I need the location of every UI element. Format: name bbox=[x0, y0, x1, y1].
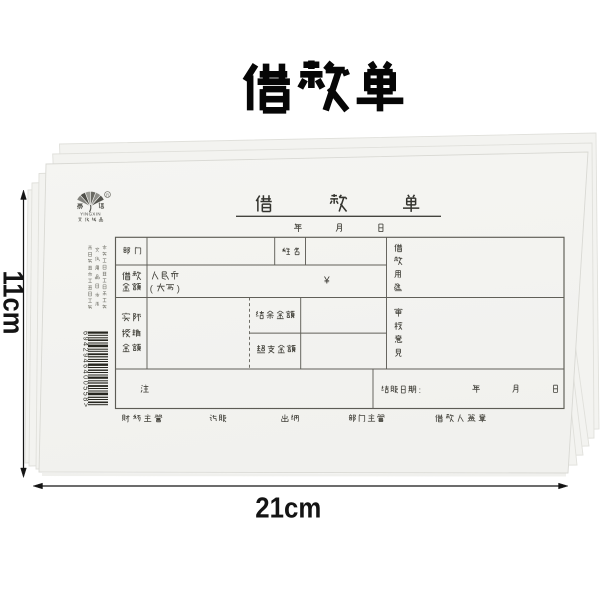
svg-text:6942946400558>: 6942946400558> bbox=[82, 331, 91, 407]
svg-text:R: R bbox=[106, 193, 109, 198]
svg-text:¥: ¥ bbox=[323, 276, 330, 287]
svg-text:): ) bbox=[177, 282, 180, 293]
svg-text::: : bbox=[419, 385, 421, 395]
svg-text:YINGXIN: YINGXIN bbox=[80, 212, 101, 217]
svg-text:21cm: 21cm bbox=[255, 493, 321, 525]
svg-text:11cm: 11cm bbox=[0, 271, 29, 335]
